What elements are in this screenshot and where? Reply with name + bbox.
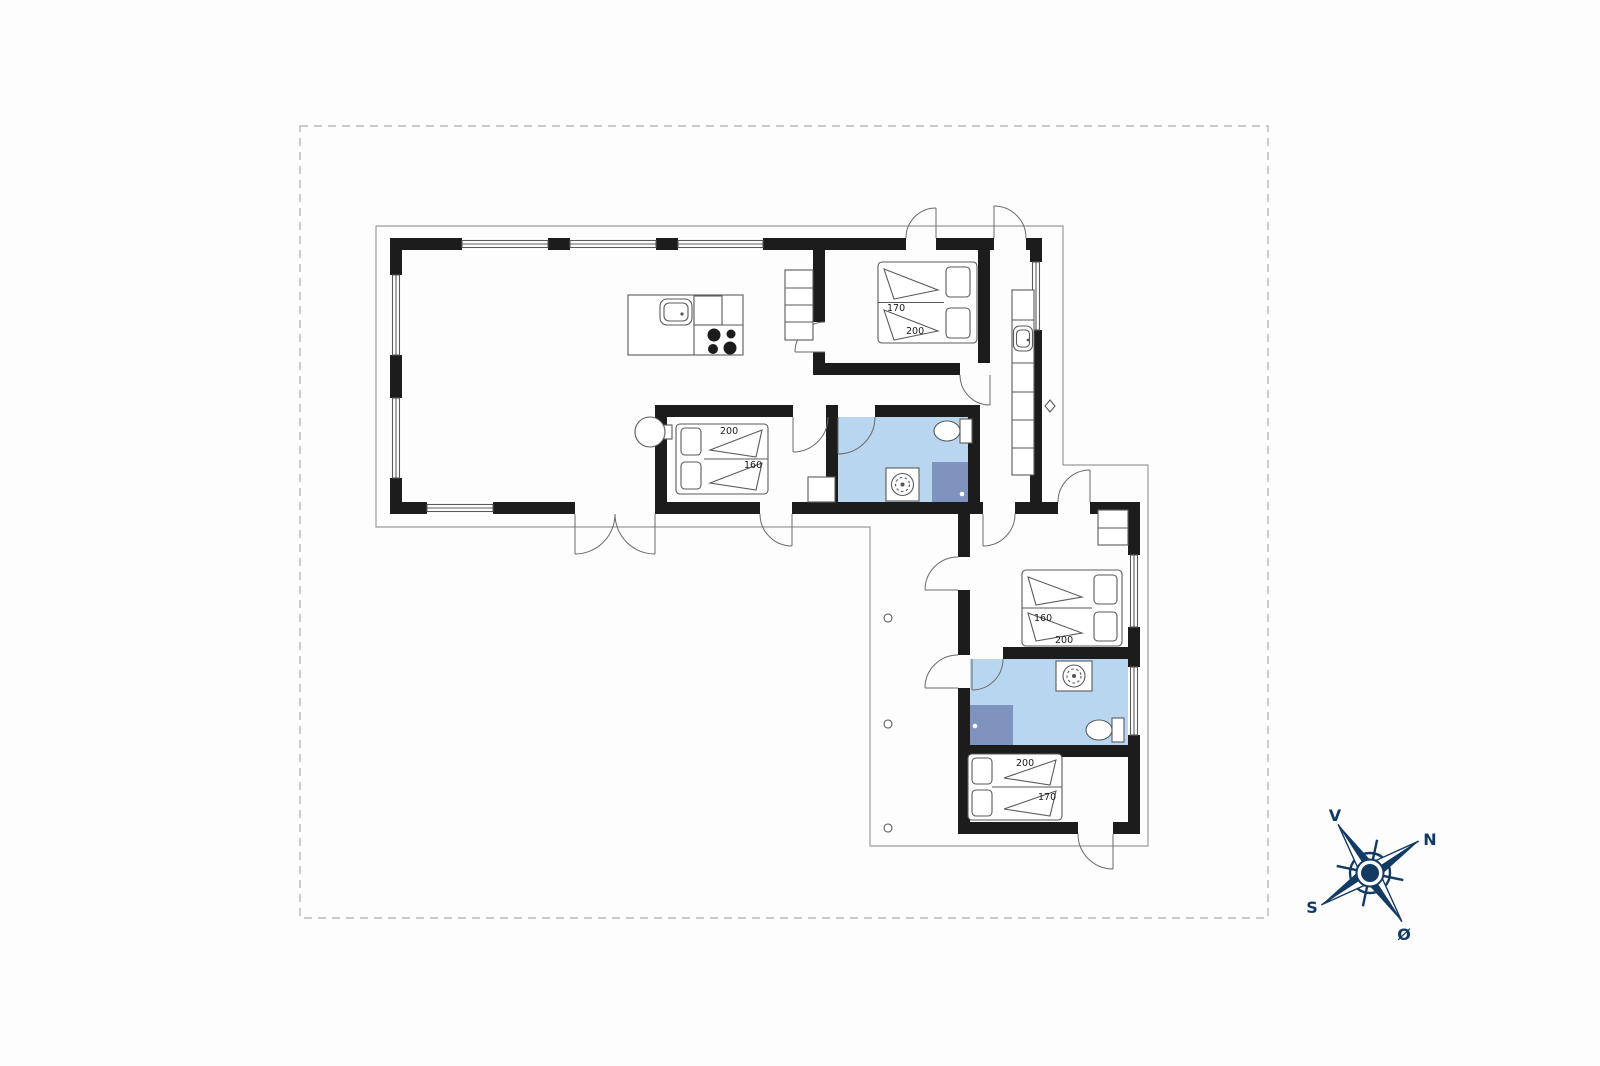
bed-length-label: 200	[906, 326, 924, 337]
window	[390, 398, 402, 478]
wardrobe	[1098, 510, 1128, 545]
compass-south-label: S	[1306, 898, 1318, 917]
corridor-door	[960, 375, 990, 405]
window	[462, 238, 548, 250]
window	[1128, 667, 1140, 735]
pillow	[972, 790, 992, 816]
floor-plan-drawing: 170 200 200 160 160 200 200 170	[0, 0, 1600, 1066]
pillow	[972, 758, 992, 784]
hall-door	[983, 514, 1015, 546]
double-bed: 200 170	[968, 754, 1062, 820]
bed-width-label: 160	[1034, 613, 1052, 624]
pillow	[1094, 575, 1117, 604]
terrace-door-south	[760, 514, 792, 546]
shower-2-drain	[973, 724, 978, 729]
window	[427, 502, 493, 514]
washing-machine-icon	[886, 468, 919, 501]
annex-terrace-door-1	[925, 557, 958, 590]
double-bed: 160 200	[1022, 570, 1122, 646]
entrance-door-2	[994, 206, 1026, 238]
compass-north-label: N	[1423, 830, 1436, 849]
cabinet	[808, 477, 835, 502]
bed-width-label: 170	[1038, 792, 1056, 803]
pillow	[681, 462, 701, 489]
bed-length-label: 200	[720, 426, 738, 437]
shower-1-drain	[960, 492, 965, 497]
window	[390, 275, 402, 355]
compass-rose: V N S Ø	[1306, 806, 1436, 944]
bed-length-label: 200	[1016, 758, 1034, 769]
pillow	[681, 428, 701, 455]
cutting-board	[694, 296, 722, 325]
middle-bedroom-door	[793, 417, 828, 452]
compass-east-label: Ø	[1397, 925, 1411, 944]
kitchen-sink-icon	[660, 299, 692, 325]
double-bed: 200 160	[676, 424, 768, 494]
window	[678, 238, 763, 250]
entrance-door-1	[906, 208, 936, 238]
utility-counter	[1012, 290, 1034, 475]
pillow	[946, 308, 970, 338]
annex-entrance-door	[1058, 470, 1090, 502]
toilet-icon	[1086, 718, 1124, 742]
annex-terrace-door-2	[925, 655, 958, 688]
pillow	[1094, 612, 1117, 641]
double-bed: 170 200	[878, 262, 977, 343]
compass-west-label: V	[1329, 806, 1342, 825]
washing-machine-icon	[1056, 661, 1092, 691]
bed-length-label: 200	[1055, 635, 1073, 646]
bed-width-label: 160	[744, 460, 762, 471]
floor-plan-page: 170 200 200 160 160 200 200 170	[0, 0, 1600, 1066]
terrace-posts	[884, 614, 892, 832]
window	[570, 238, 656, 250]
annex-bedroom-2-door	[1078, 834, 1113, 869]
kitchen-island	[628, 295, 743, 355]
french-terrace-door	[575, 514, 655, 554]
utility-sink-icon	[1014, 326, 1033, 351]
pillow	[946, 267, 970, 297]
window	[1128, 555, 1140, 627]
toilet-icon	[934, 419, 972, 443]
bed-width-label: 170	[887, 303, 905, 314]
wall-symbol-diamond	[1045, 400, 1055, 412]
pantry-cabinet	[785, 270, 813, 340]
